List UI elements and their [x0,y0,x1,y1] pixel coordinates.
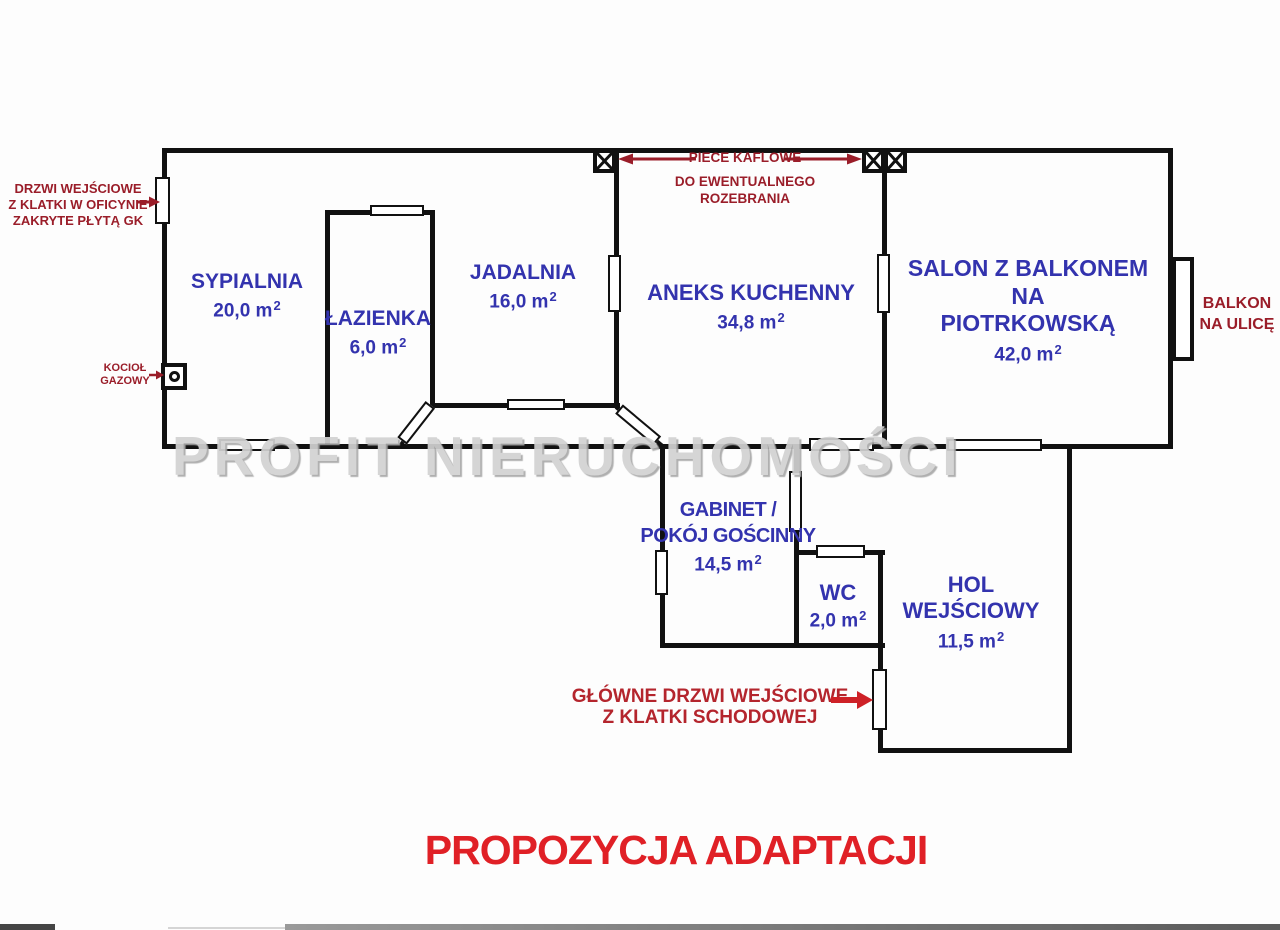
arrow-main-entrance-icon [829,689,874,711]
note-line: DRZWI WEJŚCIOWE [4,181,152,197]
arrow-side-door-icon [137,195,161,209]
balcony-outline [1172,257,1194,361]
room-label-salon: SALON Z BALKONEM NA PIOTRKOWSKĄ 42,0 m2 [903,255,1153,367]
tile-stove-icon [884,148,907,173]
jadalnia-south-door [507,399,565,410]
floor-plan-page: PROFIT NIERUCHOMOŚCI SYPIALNIA 20,0 m2 Ł… [0,0,1280,930]
room-label-jadalnia: JADALNIA 16,0 m2 [438,261,608,313]
jadalnia-aneks-door [608,255,621,312]
gas-boiler-burner [169,371,180,382]
room-name-line2: POKÓJ GOŚCINNY [633,523,823,549]
wall-gabinet-bottom [660,643,885,648]
room-label-wc: WC 2,0 m2 [793,581,883,632]
scan-artifact [0,924,55,930]
room-area: 6,0 m2 [298,335,458,359]
scan-artifact [168,927,286,929]
note-line: KOCIOŁ [94,362,156,375]
note-line: Z KLATKI W OFICYNIE [4,197,152,213]
tile-stove-icon [593,149,616,173]
room-label-lazienka: ŁAZIENKA 6,0 m2 [298,307,458,359]
watermark: PROFIT NIERUCHOMOŚCI [172,424,1132,488]
note-line: BALKON [1194,293,1280,314]
room-label-hol: HOL WEJŚCIOWY 11,5 m2 [886,572,1056,654]
room-label-aneks-kuchenny: ANEKS KUCHENNY 34,8 m2 [636,281,866,334]
note-tile-stoves-line2: DO EWENTUALNEGO [645,174,845,190]
scan-artifact [285,924,1280,930]
note-balcony: BALKON NA ULICĘ [1194,293,1280,335]
arrow-boiler-icon [148,369,165,381]
wall-hol-bottom [878,748,1072,753]
room-area: 11,5 m2 [886,628,1056,654]
room-area: 14,5 m2 [633,551,823,578]
room-name: WC [793,581,883,605]
room-name: ŁAZIENKA [298,307,458,330]
room-name: ANEKS KUCHENNY [636,281,866,305]
wall-hol-right [1067,444,1072,753]
tile-stove-icon [862,148,885,173]
room-area: 42,0 m2 [903,341,1153,367]
room-name: JADALNIA [438,261,608,284]
aneks-salon-door [877,254,890,313]
note-line: GŁÓWNE DRZWI WEJŚCIOWE [560,686,860,707]
room-label-gabinet: GABINET / POKÓJ GOŚCINNY 14,5 m2 [633,497,823,578]
note-line: Z KLATKI SCHODOWEJ [560,707,860,728]
room-name-line2: WEJŚCIOWY [886,598,1056,624]
room-name: SYPIALNIA [157,270,337,293]
room-area: 2,0 m2 [793,608,883,632]
room-name-line1: HOL [886,572,1056,598]
note-main-entrance: GŁÓWNE DRZWI WEJŚCIOWE Z KLATKI SCHODOWE… [560,686,860,728]
room-name-line2: PIOTRKOWSKĄ [903,310,1153,338]
room-name-line1: GABINET / [633,497,823,523]
arrow-stoves-right-icon [782,151,864,167]
wc-door [816,545,865,558]
note-side-entry-door: DRZWI WEJŚCIOWE Z KLATKI W OFICYNIE ZAKR… [4,181,152,229]
note-gas-boiler: KOCIOŁ GAZOWY [94,362,156,388]
note-line: ZAKRYTE PŁYTĄ GK [4,213,152,229]
room-area: 16,0 m2 [438,289,608,313]
note-tile-stoves-line3: ROZEBRANIA [645,191,845,207]
room-area: 34,8 m2 [636,310,866,334]
arrow-stoves-left-icon [616,151,698,167]
lazienka-window [370,205,424,216]
note-line: NA ULICĘ [1194,314,1280,335]
main-entry-door [872,669,887,730]
room-name-line1: SALON Z BALKONEM NA [903,255,1153,310]
page-title: PROPOZYCJA ADAPTACJI [406,827,946,874]
note-line: GAZOWY [94,375,156,388]
